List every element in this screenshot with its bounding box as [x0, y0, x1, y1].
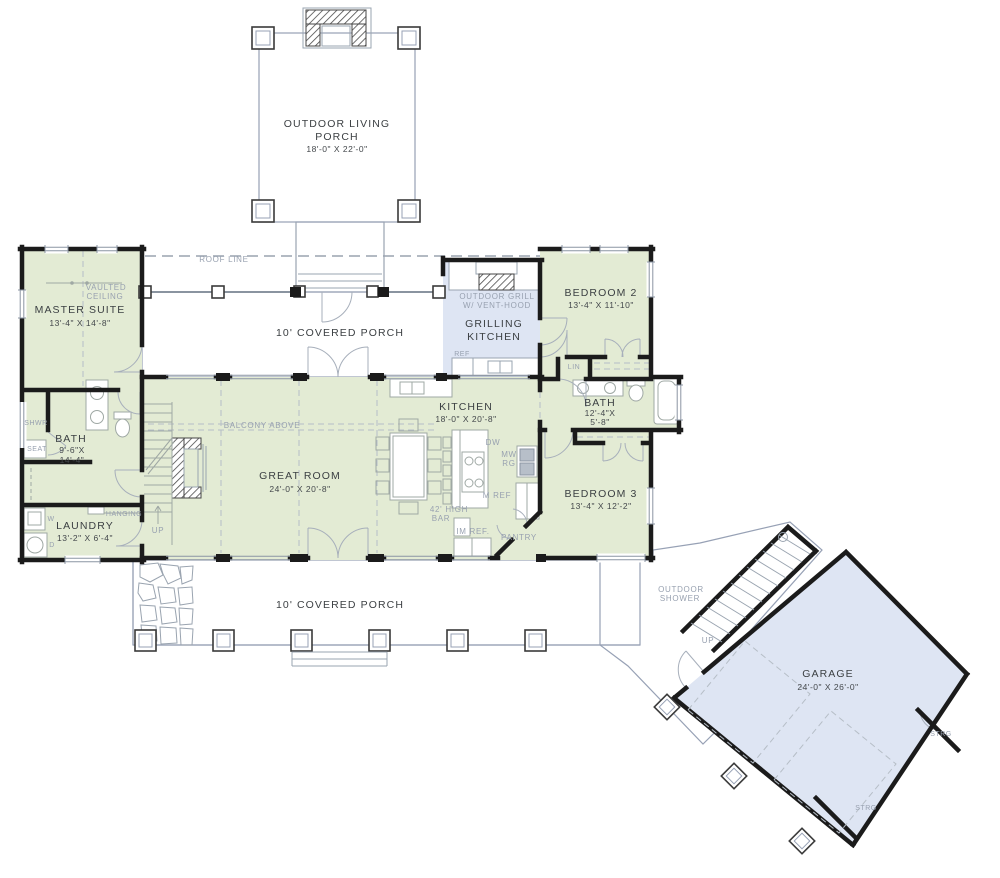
- garage-label: GARAGE: [802, 668, 854, 680]
- stairs-up-note: UP: [152, 526, 165, 535]
- grilling-kitchen-label2: KITCHEN: [467, 331, 521, 343]
- laundry-dims: 13'-2" X 6'-4": [57, 533, 113, 543]
- window: [65, 556, 100, 565]
- bath2-dims2: 5'-8": [590, 417, 609, 427]
- window: [97, 245, 117, 254]
- garage-up-note: UP: [702, 636, 715, 645]
- window: [647, 488, 656, 524]
- grilling-kitchen-label: GRILLING: [465, 318, 523, 330]
- bedroom3-label: BEDROOM 3: [565, 488, 638, 500]
- grill-ref-note: REF: [454, 351, 470, 358]
- outdoor-shower-note1: OUTDOOR: [658, 585, 704, 594]
- window: [647, 262, 656, 297]
- master-suite-label: MASTER SUITE: [35, 304, 126, 316]
- great-room-dims: 24'-0" X 20'-8": [269, 484, 330, 494]
- master-bath-dims1: 9'-6"X: [59, 445, 85, 455]
- covered-porch-top-label: 10' COVERED PORCH: [276, 327, 404, 339]
- floor-plan-drawing: OUTDOOR LIVING PORCH 18'-0" X 22'-0" ROO…: [0, 0, 1000, 878]
- window: [45, 245, 68, 254]
- ceiling-note: CEILING: [87, 292, 124, 301]
- kitchen-dims: 18'-0" X 20'-8": [435, 414, 496, 424]
- bedroom2-dims: 13'-4" X 11'-10": [568, 300, 634, 310]
- bedroom2-label: BEDROOM 2: [565, 287, 638, 299]
- strg1-note: STRG: [930, 731, 951, 738]
- outdoor-grill-note: OUTDOOR GRILL: [459, 292, 534, 301]
- dryer-note: D: [49, 542, 55, 549]
- porch-columns-bottom: [135, 630, 546, 651]
- garage-dims: 24'-0" X 26'-0": [797, 682, 858, 692]
- outdoor-living-porch-dims: 18'-0" X 22'-0": [306, 144, 367, 154]
- window: [18, 290, 27, 318]
- master-bath-dims2: 14'-4": [60, 455, 85, 465]
- rg-note: RG: [502, 459, 515, 468]
- kitchen-label: KITCHEN: [439, 401, 493, 413]
- roof-line-note: ROOF LINE: [199, 255, 248, 264]
- lin-note: LIN: [568, 364, 580, 371]
- master-suite-dims: 13'-4" X 14'-8": [49, 318, 110, 328]
- balcony-note: BALCONY ABOVE: [224, 421, 301, 430]
- porch-steps: [292, 652, 387, 666]
- dw-note: DW: [486, 438, 501, 447]
- hanging-note: HANGING: [106, 511, 142, 518]
- outdoor-living-porch-label: OUTDOOR LIVING: [284, 118, 390, 130]
- top-porch-edge: [139, 286, 445, 322]
- im-ref-note: IM REF.: [456, 527, 489, 536]
- pantry-note: PANTRY: [501, 533, 537, 542]
- window: [675, 385, 684, 420]
- seat-note: SEAT: [27, 446, 47, 453]
- m-ref-note: M REF: [483, 491, 511, 500]
- bottom-porch: [133, 560, 640, 666]
- master-bath-label: BATH: [55, 433, 87, 445]
- window: [597, 554, 645, 563]
- vaulted-note: VAULTED: [86, 283, 127, 292]
- shwr-note: SHWR: [24, 420, 47, 427]
- bedroom3-dims: 13'-4" X 12'-2": [570, 501, 631, 511]
- window: [600, 245, 628, 254]
- mw-note: MW: [501, 450, 517, 459]
- outdoor-shower-note2: SHOWER: [660, 594, 700, 603]
- great-room-label: GREAT ROOM: [259, 470, 341, 482]
- vent-hood-note: W/ VENT-HOOD: [463, 301, 531, 310]
- covered-porch-bottom-label: 10' COVERED PORCH: [276, 599, 404, 611]
- strg2-note: STRG: [855, 805, 876, 812]
- window: [562, 245, 590, 254]
- bar-note2: BAR: [432, 514, 451, 523]
- floor-plan-page: OUTDOOR LIVING PORCH 18'-0" X 22'-0" ROO…: [0, 0, 1000, 878]
- laundry-label: LAUNDRY: [56, 520, 114, 532]
- outdoor-living-porch-label2: PORCH: [315, 131, 358, 143]
- bar-note1: 42' HIGH: [430, 505, 468, 514]
- washer-note: W: [47, 516, 54, 523]
